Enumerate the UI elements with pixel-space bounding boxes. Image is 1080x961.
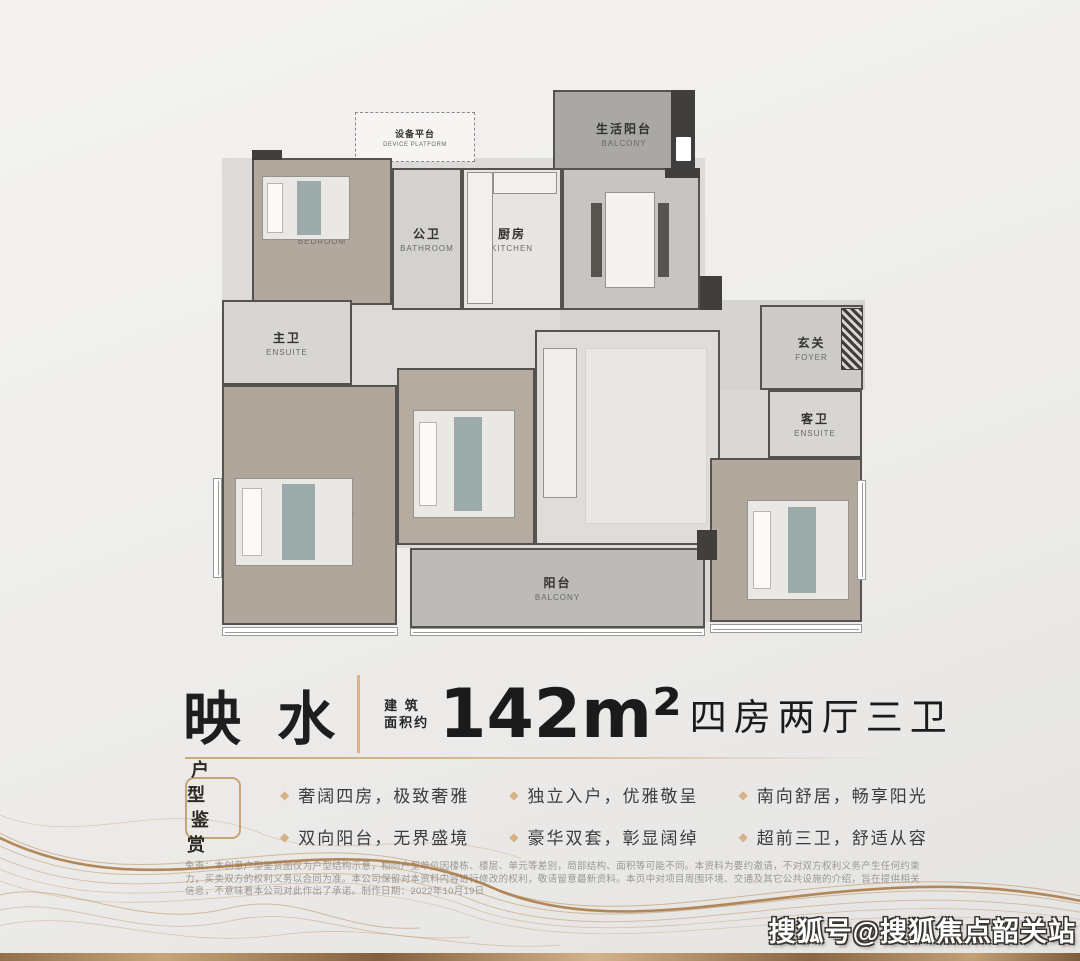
feature-text: 超前三卫，舒适从容 [757,824,928,849]
window-master-south [222,627,398,636]
badge-line1: 户 型 [187,758,239,808]
diamond-bullet-icon: ◆ [509,830,518,844]
diamond-bullet-icon: ◆ [280,830,289,844]
diamond-bullet-icon: ◆ [738,830,747,844]
area-label: 建 筑 面积约 [384,697,429,731]
area-value: 142m² [439,675,682,754]
layout-text: 四房两厅三卫 [690,687,954,741]
feature-text: 豪华双套，彰显阔绰 [527,824,698,849]
feature-item: ◆ 豪华双套，彰显阔绰 [509,824,698,849]
title-underline [185,757,897,759]
diamond-bullet-icon: ◆ [509,788,518,802]
window-east-south [710,624,862,633]
feature-text: 独立入户，优雅敬呈 [527,782,698,807]
window-master-west [213,478,222,578]
feature-text: 双向阳台，无界盛境 [298,824,469,849]
floorplan-windows-layer [205,80,875,645]
feature-item: ◆ 南向舒居，畅享阳光 [738,782,927,807]
poster-root: 设备平台 DEVICE PLATFORM 生活阳台 BALCONY 客卧 BED… [0,0,1080,961]
feature-badge: 户 型 鉴 赏 [185,777,241,839]
watermark-text: 搜狐号@搜狐焦点韶关站 [769,910,1076,949]
area-label-line1: 建 筑 [384,697,429,714]
title-divider [357,675,360,753]
feature-text: 南向舒居，畅享阳光 [757,782,928,807]
window-east-east [857,480,866,580]
diamond-bullet-icon: ◆ [738,788,747,802]
feature-text: 奢阔四房，极致奢雅 [298,782,469,807]
bottom-gradient-bar [0,953,1080,961]
feature-item: ◆ 奢阔四房，极致奢雅 [280,782,469,807]
title-bar: 映 水 建 筑 面积约 142m² 四房两厅三卫 [183,668,954,760]
feature-item: ◆ 超前三卫，舒适从容 [738,824,927,849]
disclaimer-text: 免责：本创意户型鉴赏图仅为户型结构示意，相同户型单位因楼栋、楼层、单元等差别，局… [185,861,927,899]
window-balcony-rail [410,628,705,636]
diamond-bullet-icon: ◆ [280,788,289,802]
feature-list: ◆ 奢阔四房，极致奢雅 ◆ 双向阳台，无界盛境 ◆ 独立入户，优雅敬呈 ◆ 豪华… [280,782,928,849]
feature-item: ◆ 独立入户，优雅敬呈 [509,782,698,807]
area-label-line2: 面积约 [384,714,429,731]
unit-name: 映 水 [183,672,345,756]
feature-item: ◆ 双向阳台，无界盛境 [280,824,469,849]
badge-line2: 鉴 赏 [187,808,239,858]
floorplan: 设备平台 DEVICE PLATFORM 生活阳台 BALCONY 客卧 BED… [205,80,875,645]
